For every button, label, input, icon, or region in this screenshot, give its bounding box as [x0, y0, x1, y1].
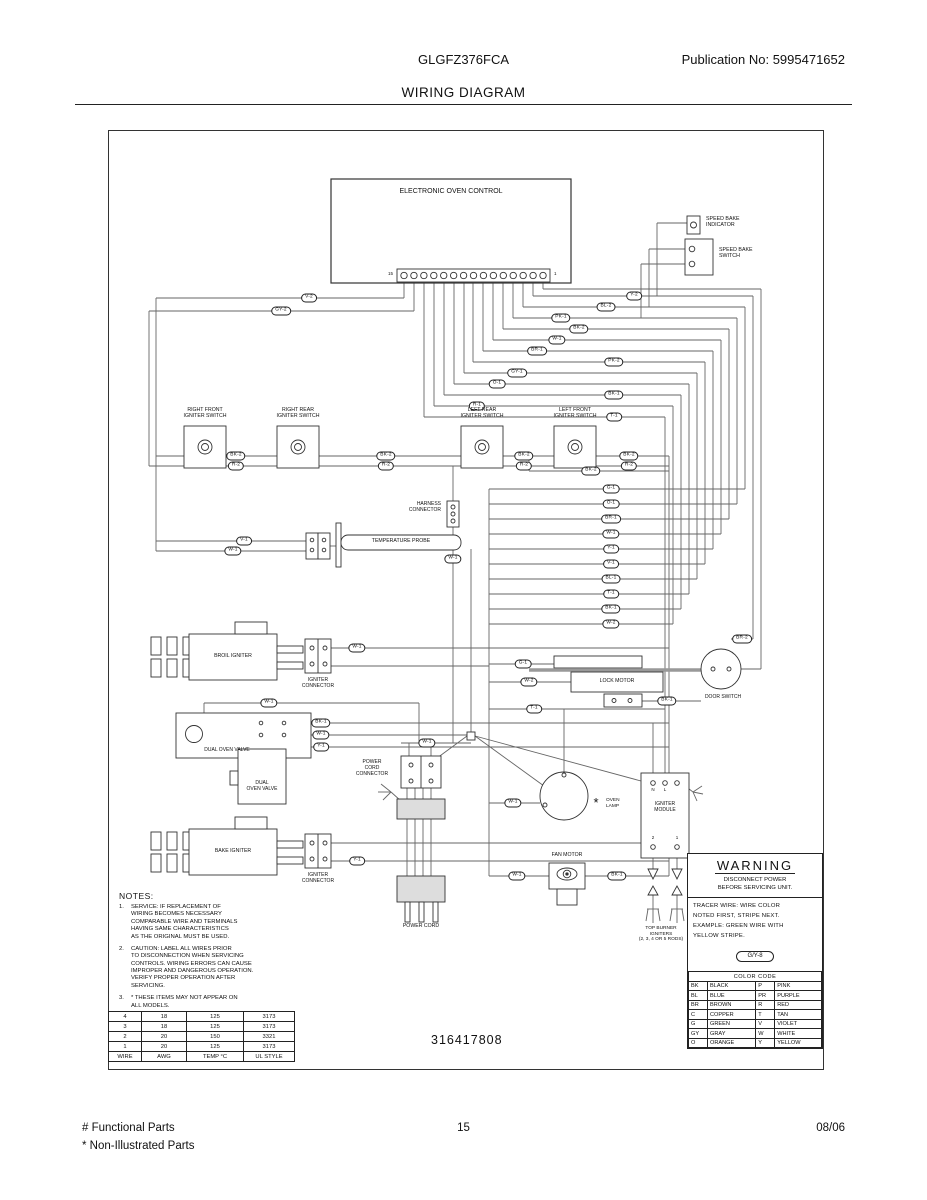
wire-code-label: V-1 — [236, 537, 252, 546]
wire-code-label: BR-2 — [732, 635, 752, 644]
wire-code-label: Y-1 — [603, 545, 619, 554]
publication-number: Publication No: 5995471652 — [682, 52, 845, 67]
wire-code-label: T-1 — [603, 590, 619, 599]
left-front-igniter-switch — [554, 426, 596, 468]
module-terminal-l: L — [664, 787, 667, 792]
igniter-connector-2-label: IGNITER CONNECTOR — [302, 873, 334, 885]
wire-code-label: R-2 — [516, 462, 532, 471]
wire-code-label: BK-2 — [569, 325, 588, 334]
strip-right-terminal-number: 1 — [554, 271, 557, 276]
wire-code-label: Y-2 — [626, 292, 642, 301]
strip-terminal — [431, 272, 437, 278]
power-cord-label: POWER CORD — [403, 923, 439, 929]
notes-heading: NOTES: — [119, 891, 297, 901]
strip-terminal — [540, 272, 546, 278]
wire-code-label: R-2 — [228, 462, 244, 471]
notes-block: NOTES: 1.SERVICE: IF REPLACEMENT OF WIRI… — [119, 891, 297, 1015]
dual-oven-valve-2-label: DUAL OVEN VALVE — [247, 781, 278, 793]
color-code-row: GGREENVVIOLET — [689, 1019, 822, 1029]
right-front-igniter-switch — [184, 426, 226, 468]
right-front-igniter-switch-label: RIGHT FRONT IGNITER SWITCH — [184, 407, 227, 419]
wire-code-label: R-2 — [378, 462, 394, 471]
broil-igniter — [151, 622, 303, 680]
tracer-wire-text: TRACER WIRE: WIRE COLOR NOTED FIRST, STR… — [693, 902, 817, 941]
dual-oven-valve-1-label: DUAL OVEN VALVE — [204, 748, 249, 754]
module-terminal-1: 1 — [676, 835, 679, 840]
right-rear-igniter-switch-label: RIGHT REAR IGNITER SWITCH — [277, 407, 320, 419]
speed-bake-indicator-label: SPEED BAKE INDICATOR — [706, 216, 740, 229]
top-burner-igniters-label: TOP BURNER IGNITERS (2, 3, 4 OR 5 RODS) — [639, 926, 683, 943]
wire-code-label: BK-1 — [607, 872, 626, 881]
wire-code-label: Y-1 — [349, 857, 365, 866]
strip-terminal — [441, 272, 447, 278]
fan-motor — [549, 863, 585, 905]
strip-left-terminal-number: 15 — [388, 271, 393, 276]
wire-code-label: BK-1 — [604, 391, 623, 400]
strip-terminal — [490, 272, 496, 278]
note-item: 1.SERVICE: IF REPLACEMENT OF WIRING BECO… — [119, 904, 297, 941]
temperature-probe-label: TEMPERATURE PROBE — [372, 538, 430, 544]
wire-gauge-row: 3181253173 — [109, 1022, 295, 1032]
warning-title: WARNING — [688, 858, 822, 873]
wiring-diagram-frame: Y-2BL-2PK-1BK-2W-1BR-1PK-2GY-1O-1BK-1R-1… — [108, 130, 824, 1070]
module-terminal-2: 2 — [652, 835, 655, 840]
module-terminal-n: N — [651, 787, 654, 792]
wire-gauge-row: WIREAWGTEMP °CUL STYLE — [109, 1052, 295, 1062]
wire-code-label: V-1 — [603, 560, 619, 569]
wire-code-label: O-1 — [603, 500, 620, 509]
strip-terminal — [500, 272, 506, 278]
door-switch — [701, 649, 741, 689]
wire-junction — [467, 732, 475, 740]
oven-lamp-asterisk: * — [593, 795, 598, 810]
note-item: 2.CAUTION: LABEL ALL WIRES PRIOR TO DISC… — [119, 946, 297, 990]
temperature-probe — [306, 523, 461, 567]
color-code-row: CCOPPERTTAN — [689, 1010, 822, 1020]
bake-igniter-label: BAKE IGNITER — [215, 848, 251, 854]
footer-page-number: 15 — [0, 1122, 927, 1134]
dual-oven-valve-2 — [230, 749, 286, 804]
wire-code-label: BK-2 — [376, 452, 395, 461]
wire-code-label: R-2 — [621, 462, 637, 471]
wire-code-label: PK-2 — [604, 358, 623, 367]
wire-code-label: W-1 — [312, 731, 329, 740]
wire-code-label: BR-1 — [527, 347, 547, 356]
footer-date: 08/06 — [816, 1122, 845, 1134]
harness-connector-label: HARNESS CONNECTOR — [409, 502, 441, 514]
oven-lamp — [540, 772, 588, 820]
igniter-module — [641, 773, 689, 858]
page-title: WIRING DIAGRAM — [0, 85, 927, 100]
wire-code-label: W-1 — [508, 872, 525, 881]
wire-code-label: BK-2 — [514, 452, 533, 461]
wire-code-label: GY-2 — [271, 307, 291, 316]
door-switch-label: DOOR SWITCH — [705, 695, 741, 701]
wire-code-label: T-1 — [526, 705, 542, 714]
strip-terminal — [520, 272, 526, 278]
color-code-row: BRBROWNRRED — [689, 1000, 822, 1010]
strip-terminal — [401, 272, 407, 278]
wire-code-label: BK-2 — [226, 452, 245, 461]
wire-code-label: BK-1 — [657, 697, 676, 706]
wire-gauge-table: 4181253173318125317322015033211201253173… — [108, 1011, 295, 1062]
strip-terminal — [510, 272, 516, 278]
color-code-table: COLOR CODEBKBLACKPPINKBLBLUEPRPURPLEBRBR… — [688, 971, 822, 1048]
top-burner-igniter-arrows — [648, 869, 682, 895]
speed-bake-indicator — [687, 216, 700, 234]
strip-terminal — [421, 272, 427, 278]
wire-code-label: W-1 — [504, 799, 521, 808]
wire-code-label: W-1 — [444, 555, 461, 564]
strip-terminal — [470, 272, 476, 278]
right-rear-igniter-switch — [277, 426, 319, 468]
warning-box: WARNING DISCONNECT POWER BEFORE SERVICIN… — [687, 853, 823, 1049]
wire-code-label: G-1 — [603, 485, 620, 494]
broil-igniter-label: BROIL IGNITER — [214, 653, 252, 659]
fan-motor-label: FAN MOTOR — [552, 852, 583, 858]
power-cord-strain-block — [397, 799, 445, 819]
color-code-row: BKBLACKPPINK — [689, 981, 822, 991]
left-rear-igniter-switch-label: LEFT REAR IGNITER SWITCH — [461, 407, 504, 419]
wire-code-label: W-1 — [224, 547, 241, 556]
bake-igniter-connector — [305, 834, 331, 868]
igniter-connector-1-label: IGNITER CONNECTOR — [302, 678, 334, 690]
wire-code-label: Y-1 — [313, 743, 329, 752]
tracer-wire-note: TRACER WIRE: WIRE COLOR NOTED FIRST, STR… — [688, 897, 822, 971]
wire-code-label: O-1 — [489, 380, 506, 389]
wire-code-label: W-2 — [520, 678, 537, 687]
title-rule — [75, 104, 852, 105]
wire-code-label: BK-1 — [311, 719, 330, 728]
wire-code-label: W-1 — [348, 644, 365, 653]
igniter-module-label: IGNITER MODULE — [654, 802, 675, 814]
speed-bake-switch-label: SPEED BAKE SWITCH — [719, 247, 753, 260]
wire-gauge-row: 1201253173 — [109, 1042, 295, 1052]
strip-terminal — [530, 272, 536, 278]
lock-motor-label: LOCK MOTOR — [600, 678, 635, 684]
wire-code-label: W-1 — [602, 530, 619, 539]
wire-code-label: G-1 — [515, 660, 532, 669]
wire-code-label: V-2 — [301, 294, 317, 303]
strip-terminal — [411, 272, 417, 278]
left-rear-igniter-switch — [461, 426, 503, 468]
power-cord-plug — [397, 876, 445, 922]
tracer-example-code: G/Y-8 — [736, 951, 773, 962]
note-item: 3.* THESE ITEMS MAY NOT APPEAR ON ALL MO… — [119, 995, 297, 1010]
wire-code-label: W-1 — [548, 336, 565, 345]
color-code-title: COLOR CODE — [689, 972, 822, 982]
wire-code-label: BL-1 — [602, 575, 621, 584]
wire-code-label: W-1 — [260, 699, 277, 708]
strip-terminal — [480, 272, 486, 278]
wire-code-label: BL-2 — [597, 303, 616, 312]
tracer-example: G/Y-8 — [693, 944, 817, 962]
oven-lamp-label: OVEN LAMP — [606, 798, 620, 809]
wire-code-label: T-1 — [606, 413, 622, 422]
part-number: 316417808 — [431, 1033, 503, 1047]
wire-code-label: BR-1 — [601, 515, 621, 524]
speed-bake-switch — [685, 239, 713, 275]
wire-code-label: GY-1 — [507, 369, 527, 378]
harness-connector — [447, 501, 459, 527]
wire-code-label: W-2 — [602, 620, 619, 629]
strip-terminal — [460, 272, 466, 278]
color-code-row: BLBLUEPRPURPLE — [689, 991, 822, 1001]
wire-code-label: PK-1 — [551, 314, 570, 323]
footer-non-illustrated-parts: * Non-Illustrated Parts — [82, 1140, 195, 1152]
warning-subtitle: DISCONNECT POWER BEFORE SERVICING UNIT. — [690, 877, 820, 892]
strip-terminal — [450, 272, 456, 278]
color-code-row: OORANGEYYELLOW — [689, 1038, 822, 1048]
manual-page: { "header": { "model": "GLGFZ376FCA", "p… — [0, 0, 927, 1200]
terminal-strip — [401, 272, 546, 278]
wire-gauge-row: 2201503321 — [109, 1032, 295, 1042]
wire-gauge-row: 4181253173 — [109, 1012, 295, 1022]
broil-igniter-connector — [305, 639, 331, 673]
power-cord-connector — [401, 756, 441, 788]
wire-code-label: BK-2 — [619, 452, 638, 461]
color-code-row: GYGRAYWWHITE — [689, 1029, 822, 1039]
left-front-igniter-switch-label: LEFT FRONT IGNITER SWITCH — [554, 407, 597, 419]
power-cord-connector-label: POWER CORD CONNECTOR — [356, 760, 388, 778]
wire-code-label: BK-2 — [581, 467, 600, 476]
eoc-label: ELECTRONIC OVEN CONTROL — [399, 188, 502, 196]
bake-igniter — [151, 817, 303, 875]
wire-code-label: W-1 — [418, 739, 435, 748]
wire-code-label: BK-1 — [601, 605, 620, 614]
